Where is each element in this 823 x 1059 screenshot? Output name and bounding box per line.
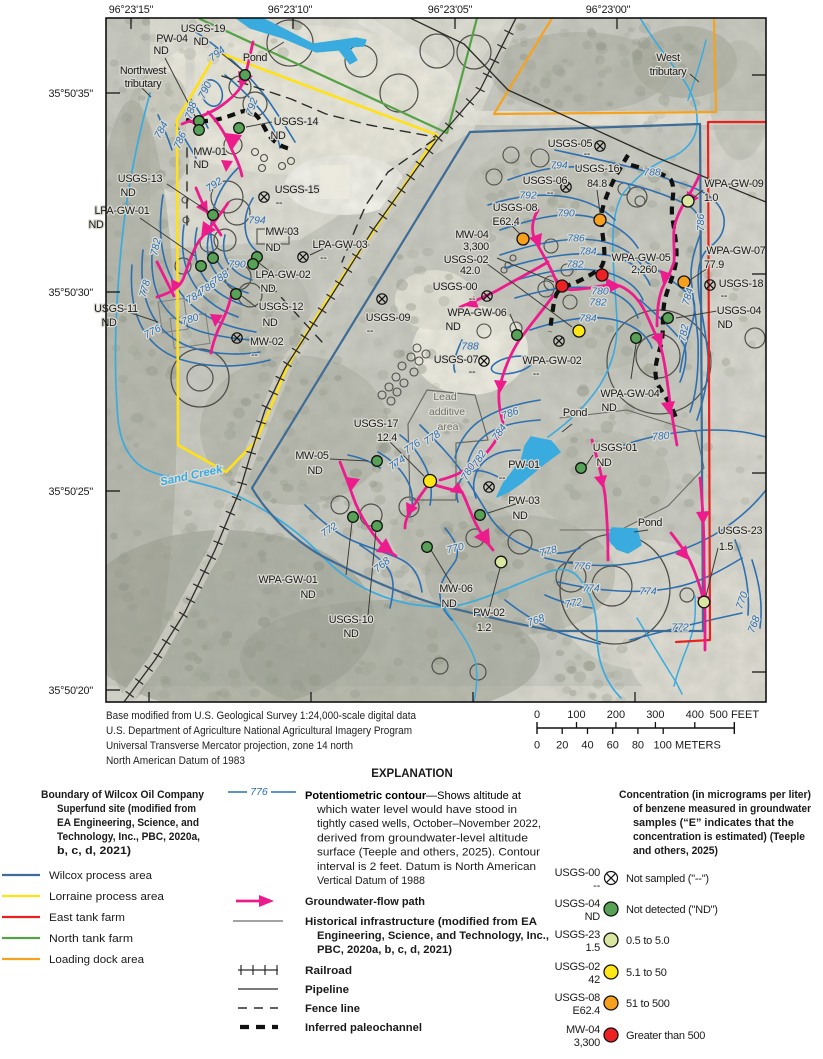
svg-text:500 FEET: 500 FEET xyxy=(710,709,760,721)
svg-text:Base modified from U.S. Geolog: Base modified from U.S. Geological Surve… xyxy=(106,710,417,722)
svg-text:400: 400 xyxy=(686,709,704,721)
svg-text:ND: ND xyxy=(120,187,136,199)
svg-text:35°50'35": 35°50'35" xyxy=(49,88,94,100)
svg-text:USGS-08: USGS-08 xyxy=(493,202,538,214)
svg-text:Universal Transverse Mercator: Universal Transverse Mercator projection… xyxy=(106,740,353,752)
svg-text:tributary: tributary xyxy=(650,66,688,78)
svg-text:WPA-GW-06: WPA-GW-06 xyxy=(447,307,506,319)
svg-text:of benzene measured in groundw: of benzene measured in groundwater xyxy=(633,803,812,815)
svg-text:E62.4: E62.4 xyxy=(573,1005,601,1017)
svg-text:EA Engineering, Science, and: EA Engineering, Science, and xyxy=(57,817,199,829)
svg-text:96°23'15": 96°23'15" xyxy=(109,4,154,16)
svg-text:USGS-12: USGS-12 xyxy=(259,301,304,313)
svg-text:Lorraine process area: Lorraine process area xyxy=(49,891,165,903)
svg-text:1.2: 1.2 xyxy=(477,622,492,634)
svg-text:Loading dock area: Loading dock area xyxy=(49,954,145,966)
svg-text:and others, 2025): and others, 2025) xyxy=(633,845,718,857)
svg-text:--: -- xyxy=(593,880,600,892)
svg-text:84.8: 84.8 xyxy=(587,178,607,190)
svg-text:USGS-04: USGS-04 xyxy=(555,898,600,910)
svg-text:ND: ND xyxy=(343,628,359,640)
svg-text:774: 774 xyxy=(639,586,657,598)
svg-text:Inferred paleochannel: Inferred paleochannel xyxy=(305,1022,422,1034)
svg-text:E62.4: E62.4 xyxy=(493,216,520,228)
svg-text:USGS-23: USGS-23 xyxy=(555,929,600,941)
svg-text:784: 784 xyxy=(579,246,597,258)
svg-text:Superfund site (modified from: Superfund site (modified from xyxy=(57,803,196,815)
svg-text:ND: ND xyxy=(441,598,457,610)
svg-text:area: area xyxy=(437,421,458,433)
svg-text:b, c, d, 2021): b, c, d, 2021) xyxy=(57,845,131,857)
svg-text:ND: ND xyxy=(88,219,104,231)
svg-text:USGS-16: USGS-16 xyxy=(575,163,620,175)
svg-text:Pond: Pond xyxy=(243,52,267,64)
svg-text:USGS-08: USGS-08 xyxy=(555,992,600,1004)
svg-text:derived from groundwater-level: derived from groundwater-level altitude xyxy=(317,832,528,844)
svg-text:WPA-GW-05: WPA-GW-05 xyxy=(611,252,670,264)
svg-text:3,300: 3,300 xyxy=(463,241,489,253)
svg-text:WPA-GW-04: WPA-GW-04 xyxy=(600,388,659,400)
svg-text:West: West xyxy=(656,52,680,64)
svg-text:Historical infrastructure (mod: Historical infrastructure (modified from… xyxy=(305,916,537,928)
svg-text:Pipeline: Pipeline xyxy=(305,984,349,996)
svg-text:WPA-GW-07: WPA-GW-07 xyxy=(706,245,765,257)
svg-text:MW-02: MW-02 xyxy=(250,336,284,348)
svg-text:--: -- xyxy=(547,187,554,199)
svg-text:100: 100 xyxy=(567,709,585,721)
svg-text:1.5: 1.5 xyxy=(719,541,734,553)
svg-text:Fence line: Fence line xyxy=(305,1003,360,1015)
svg-text:42.0: 42.0 xyxy=(460,265,480,277)
svg-text:ND: ND xyxy=(260,283,276,295)
svg-text:ND: ND xyxy=(445,321,461,333)
svg-text:USGS-09: USGS-09 xyxy=(366,312,411,324)
svg-text:WPA-GW-02: WPA-GW-02 xyxy=(522,355,581,367)
svg-text:96°23'05": 96°23'05" xyxy=(428,4,473,16)
svg-text:MW-03: MW-03 xyxy=(265,226,299,238)
svg-text:WPA-GW-09: WPA-GW-09 xyxy=(704,178,763,190)
svg-text:Concentration (in micrograms p: Concentration (in micrograms per liter) xyxy=(619,789,811,801)
svg-text:USGS-17: USGS-17 xyxy=(354,418,399,430)
svg-text:Northwest: Northwest xyxy=(120,65,167,77)
svg-text:USGS-18: USGS-18 xyxy=(719,278,764,290)
svg-text:North tank farm: North tank farm xyxy=(49,933,133,945)
svg-text:--: -- xyxy=(721,290,728,302)
svg-text:ND: ND xyxy=(270,130,286,142)
svg-text:ND: ND xyxy=(193,36,209,48)
svg-text:3,300: 3,300 xyxy=(574,1037,600,1049)
svg-text:USGS-00: USGS-00 xyxy=(433,281,478,293)
svg-text:Not sampled ("--"): Not sampled ("--") xyxy=(626,873,709,885)
svg-text:USGS-02: USGS-02 xyxy=(555,961,600,973)
svg-text:USGS-15: USGS-15 xyxy=(275,184,320,196)
svg-text:Technology, Inc., PBC, 2020a,: Technology, Inc., PBC, 2020a, xyxy=(57,831,200,843)
svg-text:80: 80 xyxy=(632,740,644,752)
svg-text:1.5: 1.5 xyxy=(585,942,600,954)
svg-text:ND: ND xyxy=(512,510,528,522)
svg-text:Greater than 500: Greater than 500 xyxy=(626,1030,705,1042)
svg-text:786: 786 xyxy=(695,214,707,232)
svg-text:interval is 2 feet. Datum is N: interval is 2 feet. Datum is North Ameri… xyxy=(317,861,536,873)
svg-text:tightly cased wells, October–N: tightly cased wells, October–November 20… xyxy=(317,818,541,830)
svg-text:0: 0 xyxy=(534,740,540,752)
svg-text:788: 788 xyxy=(643,167,661,179)
svg-text:ND: ND xyxy=(307,465,323,477)
svg-text:concentration is estimated) (T: concentration is estimated) (Teeple xyxy=(633,831,805,843)
svg-text:--: -- xyxy=(584,148,591,160)
svg-text:surface (Teeple and others, 20: surface (Teeple and others, 2025). Conto… xyxy=(317,847,540,859)
svg-text:786: 786 xyxy=(567,233,585,245)
svg-text:300: 300 xyxy=(646,709,664,721)
svg-text:ND: ND xyxy=(262,317,278,329)
svg-text:--: -- xyxy=(251,349,258,361)
svg-text:USGS-11: USGS-11 xyxy=(94,303,138,315)
svg-text:Lead: Lead xyxy=(433,391,457,403)
svg-text:ND: ND xyxy=(585,911,601,923)
svg-text:--: -- xyxy=(367,325,374,337)
svg-text:MW-05: MW-05 xyxy=(295,450,329,462)
svg-text:ND: ND xyxy=(601,402,617,414)
svg-text:Wilcox process area: Wilcox process area xyxy=(49,870,153,882)
svg-text:96°23'10": 96°23'10" xyxy=(268,4,313,16)
svg-text:--: -- xyxy=(499,472,506,484)
svg-text:--: -- xyxy=(469,293,476,305)
svg-text:PW-04: PW-04 xyxy=(156,33,188,45)
svg-text:2,260: 2,260 xyxy=(631,264,657,276)
svg-text:--: -- xyxy=(533,368,540,380)
svg-text:Vertical Datum of 1988: Vertical Datum of 1988 xyxy=(317,875,425,887)
svg-text:ND: ND xyxy=(300,589,316,601)
svg-text:782: 782 xyxy=(566,259,584,271)
svg-text:PW-01: PW-01 xyxy=(508,459,540,471)
svg-text:Groundwater-flow path: Groundwater-flow path xyxy=(305,896,425,908)
svg-text:--: -- xyxy=(469,366,476,378)
svg-text:East tank farm: East tank farm xyxy=(49,912,125,924)
svg-text:200: 200 xyxy=(607,709,625,721)
svg-text:35°50'30": 35°50'30" xyxy=(49,287,94,299)
svg-text:20: 20 xyxy=(556,740,568,752)
svg-text:Potentiometric contour—Shows a: Potentiometric contour—Shows altitude at xyxy=(305,790,521,802)
svg-text:USGS-10: USGS-10 xyxy=(329,614,374,626)
svg-text:ND: ND xyxy=(265,242,281,254)
svg-text:60: 60 xyxy=(607,740,619,752)
svg-text:--: -- xyxy=(320,252,327,264)
svg-text:776: 776 xyxy=(250,786,268,798)
svg-text:792: 792 xyxy=(519,190,537,202)
svg-text:51 to 500: 51 to 500 xyxy=(626,998,670,1010)
svg-text:35°50'25": 35°50'25" xyxy=(49,486,94,498)
svg-text:Pond: Pond xyxy=(563,407,587,419)
svg-text:772: 772 xyxy=(671,622,689,634)
svg-text:ND: ND xyxy=(153,45,169,57)
svg-text:PW-02: PW-02 xyxy=(473,607,505,619)
svg-text:additive: additive xyxy=(429,406,465,418)
svg-text:794: 794 xyxy=(248,215,266,227)
svg-text:5.1 to 50: 5.1 to 50 xyxy=(626,967,667,979)
svg-text:Engineering, Science, and Tech: Engineering, Science, and Technology, In… xyxy=(317,930,549,942)
svg-text:MW-06: MW-06 xyxy=(439,583,473,595)
svg-text:ND: ND xyxy=(101,317,117,329)
svg-text:Railroad: Railroad xyxy=(305,965,352,977)
svg-text:0.5 to 5.0: 0.5 to 5.0 xyxy=(626,935,670,947)
svg-text:42: 42 xyxy=(588,974,600,986)
svg-text:LPA-GW-03: LPA-GW-03 xyxy=(313,239,368,251)
svg-text:780: 780 xyxy=(651,430,670,443)
svg-text:North American Datum of 1983: North American Datum of 1983 xyxy=(106,755,245,767)
svg-text:40: 40 xyxy=(581,740,593,752)
svg-text:774: 774 xyxy=(582,583,600,595)
svg-text:PW-03: PW-03 xyxy=(508,495,540,507)
svg-text:35°50'20": 35°50'20" xyxy=(49,685,94,697)
svg-text:USGS-01: USGS-01 xyxy=(593,442,638,454)
svg-text:Not detected ("ND"): Not detected ("ND") xyxy=(626,904,718,916)
svg-text:790: 790 xyxy=(228,259,246,271)
svg-text:12.4: 12.4 xyxy=(377,432,397,444)
svg-text:U.S. Department of Agriculture: U.S. Department of Agriculture National … xyxy=(106,725,412,737)
svg-text:LPA-GW-02: LPA-GW-02 xyxy=(256,269,311,281)
svg-text:Pond: Pond xyxy=(638,517,662,529)
svg-text:USGS-14: USGS-14 xyxy=(274,116,319,128)
svg-text:USGS-07: USGS-07 xyxy=(434,354,479,366)
svg-text:USGS-04: USGS-04 xyxy=(717,305,762,317)
svg-text:96°23'00": 96°23'00" xyxy=(586,4,631,16)
svg-text:ND: ND xyxy=(596,457,612,469)
svg-text:LPA-GW-01: LPA-GW-01 xyxy=(95,205,150,217)
svg-text:782: 782 xyxy=(589,297,607,309)
svg-text:tributary: tributary xyxy=(125,78,163,90)
svg-text:784: 784 xyxy=(579,313,597,325)
svg-text:MW-04: MW-04 xyxy=(566,1024,600,1036)
svg-text:samples (“E” indicates that th: samples (“E” indicates that the xyxy=(633,817,794,829)
svg-text:which water level would have s: which water level would have stood in xyxy=(316,804,517,816)
svg-text:Boundary of Wilcox Oil Company: Boundary of Wilcox Oil Company xyxy=(41,789,205,801)
svg-text:ND: ND xyxy=(717,319,733,331)
svg-text:ND: ND xyxy=(193,159,209,171)
svg-text:1.0: 1.0 xyxy=(704,192,719,204)
svg-text:EXPLANATION: EXPLANATION xyxy=(371,768,453,780)
svg-text:794: 794 xyxy=(550,160,568,172)
svg-text:0: 0 xyxy=(534,709,540,721)
svg-text:USGS-13: USGS-13 xyxy=(118,173,163,185)
svg-text:100 METERS: 100 METERS xyxy=(654,740,721,752)
svg-text:USGS-23: USGS-23 xyxy=(718,525,763,537)
svg-text:MW-01: MW-01 xyxy=(193,146,227,158)
svg-text:WPA-GW-01: WPA-GW-01 xyxy=(258,574,317,586)
svg-text:77.9: 77.9 xyxy=(704,259,724,271)
svg-text:788: 788 xyxy=(461,341,479,353)
svg-text:--: -- xyxy=(276,197,283,209)
svg-text:USGS-00: USGS-00 xyxy=(555,867,600,879)
svg-text:MW-04: MW-04 xyxy=(455,229,489,241)
svg-text:776: 776 xyxy=(573,561,591,573)
svg-text:790: 790 xyxy=(557,208,575,220)
svg-text:PBC, 2020a, b, c, d, 2021): PBC, 2020a, b, c, d, 2021) xyxy=(317,944,452,956)
svg-text:USGS-06: USGS-06 xyxy=(523,175,568,187)
